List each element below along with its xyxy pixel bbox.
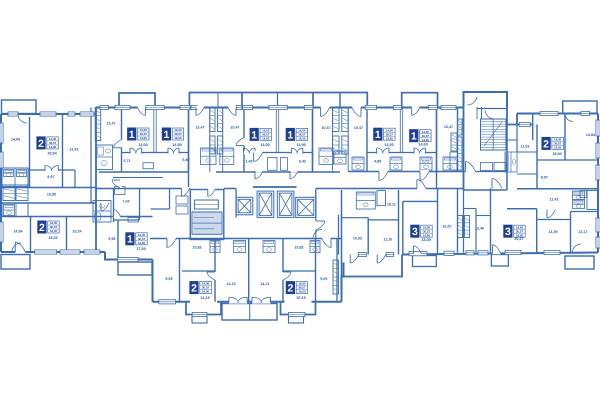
svg-text:1: 1 (127, 234, 133, 246)
svg-text:14,00: 14,00 (423, 233, 431, 237)
svg-text:18,09: 18,09 (421, 238, 431, 242)
svg-text:18,94: 18,94 (552, 152, 562, 156)
svg-text:10,47: 10,47 (354, 126, 363, 130)
svg-text:14,39: 14,39 (548, 230, 557, 234)
svg-text:10,47: 10,47 (230, 126, 239, 130)
svg-text:13,47: 13,47 (195, 126, 204, 130)
svg-text:6,80: 6,80 (182, 158, 189, 162)
svg-text:11,91: 11,91 (520, 145, 529, 149)
svg-text:14,93: 14,93 (384, 143, 394, 147)
svg-text:14,00: 14,00 (138, 143, 148, 147)
svg-text:1: 1 (287, 129, 293, 141)
svg-text:14,02: 14,02 (353, 236, 362, 240)
svg-text:6,42: 6,42 (299, 160, 306, 164)
svg-text:14,94: 14,94 (13, 230, 23, 234)
svg-text:7,04: 7,04 (122, 200, 130, 204)
svg-text:14,93: 14,93 (418, 143, 428, 147)
svg-text:2: 2 (543, 138, 549, 150)
svg-text:14,00: 14,00 (386, 136, 394, 140)
svg-text:20,27: 20,27 (514, 237, 524, 241)
svg-text:3: 3 (412, 226, 418, 238)
svg-text:1: 1 (251, 129, 257, 141)
svg-text:14,00: 14,00 (298, 290, 306, 294)
svg-text:14,00: 14,00 (49, 145, 57, 149)
svg-text:14,00: 14,00 (50, 229, 58, 233)
svg-text:14,90: 14,90 (172, 143, 182, 147)
svg-text:14,00: 14,00 (174, 136, 182, 140)
svg-text:9,69: 9,69 (320, 277, 327, 281)
svg-text:3: 3 (505, 226, 511, 238)
svg-text:11,10: 11,10 (383, 238, 392, 242)
svg-text:14,90: 14,90 (296, 143, 306, 147)
svg-text:18,11: 18,11 (387, 203, 396, 207)
svg-text:2: 2 (39, 222, 45, 234)
svg-text:10,25: 10,25 (442, 225, 451, 229)
svg-text:14,00: 14,00 (298, 137, 306, 141)
svg-text:14,00: 14,00 (138, 241, 146, 245)
svg-text:13,47: 13,47 (106, 122, 115, 126)
svg-text:14,00: 14,00 (202, 290, 210, 294)
svg-text:10,15: 10,15 (296, 296, 306, 300)
svg-text:18,02: 18,02 (48, 236, 58, 240)
svg-text:2: 2 (191, 283, 197, 295)
svg-text:14,00: 14,00 (140, 136, 148, 140)
svg-text:12,46: 12,46 (475, 227, 484, 231)
svg-text:1,71: 1,71 (422, 159, 429, 163)
svg-text:11,42: 11,42 (549, 198, 558, 202)
svg-text:5,71: 5,71 (123, 159, 130, 163)
svg-text:10,90: 10,90 (47, 193, 56, 197)
svg-text:15,82: 15,82 (294, 246, 303, 250)
svg-text:18,84: 18,84 (47, 152, 57, 156)
svg-text:1,42: 1,42 (245, 160, 252, 164)
svg-text:2: 2 (38, 138, 44, 150)
svg-text:8,97: 8,97 (47, 175, 54, 179)
svg-text:13,17: 13,17 (578, 230, 587, 234)
svg-text:17,89: 17,89 (136, 247, 146, 251)
svg-text:14,15: 14,15 (226, 282, 235, 286)
svg-text:9,69: 9,69 (165, 277, 172, 281)
svg-text:14,00: 14,00 (260, 143, 270, 147)
svg-text:4,89: 4,89 (374, 159, 381, 163)
svg-text:1: 1 (411, 131, 417, 143)
svg-text:10,47: 10,47 (321, 126, 330, 130)
svg-text:11,92: 11,92 (69, 148, 78, 152)
svg-text:14,00: 14,00 (422, 138, 430, 142)
svg-text:10,24: 10,24 (72, 230, 82, 234)
svg-text:8,97: 8,97 (541, 175, 548, 179)
svg-text:10,47: 10,47 (444, 125, 453, 129)
svg-text:14,11: 14,11 (260, 282, 269, 286)
svg-text:14,84: 14,84 (586, 133, 596, 137)
svg-text:1: 1 (129, 129, 135, 141)
svg-text:14,94: 14,94 (11, 138, 21, 142)
svg-text:15,82: 15,82 (192, 246, 201, 250)
svg-text:1: 1 (163, 129, 169, 141)
svg-text:14,15: 14,15 (200, 296, 210, 300)
svg-text:2: 2 (287, 283, 293, 295)
svg-text:14,00: 14,00 (554, 146, 562, 150)
svg-text:14,00: 14,00 (262, 137, 270, 141)
svg-text:1: 1 (375, 129, 381, 141)
svg-text:9,92: 9,92 (108, 237, 115, 241)
